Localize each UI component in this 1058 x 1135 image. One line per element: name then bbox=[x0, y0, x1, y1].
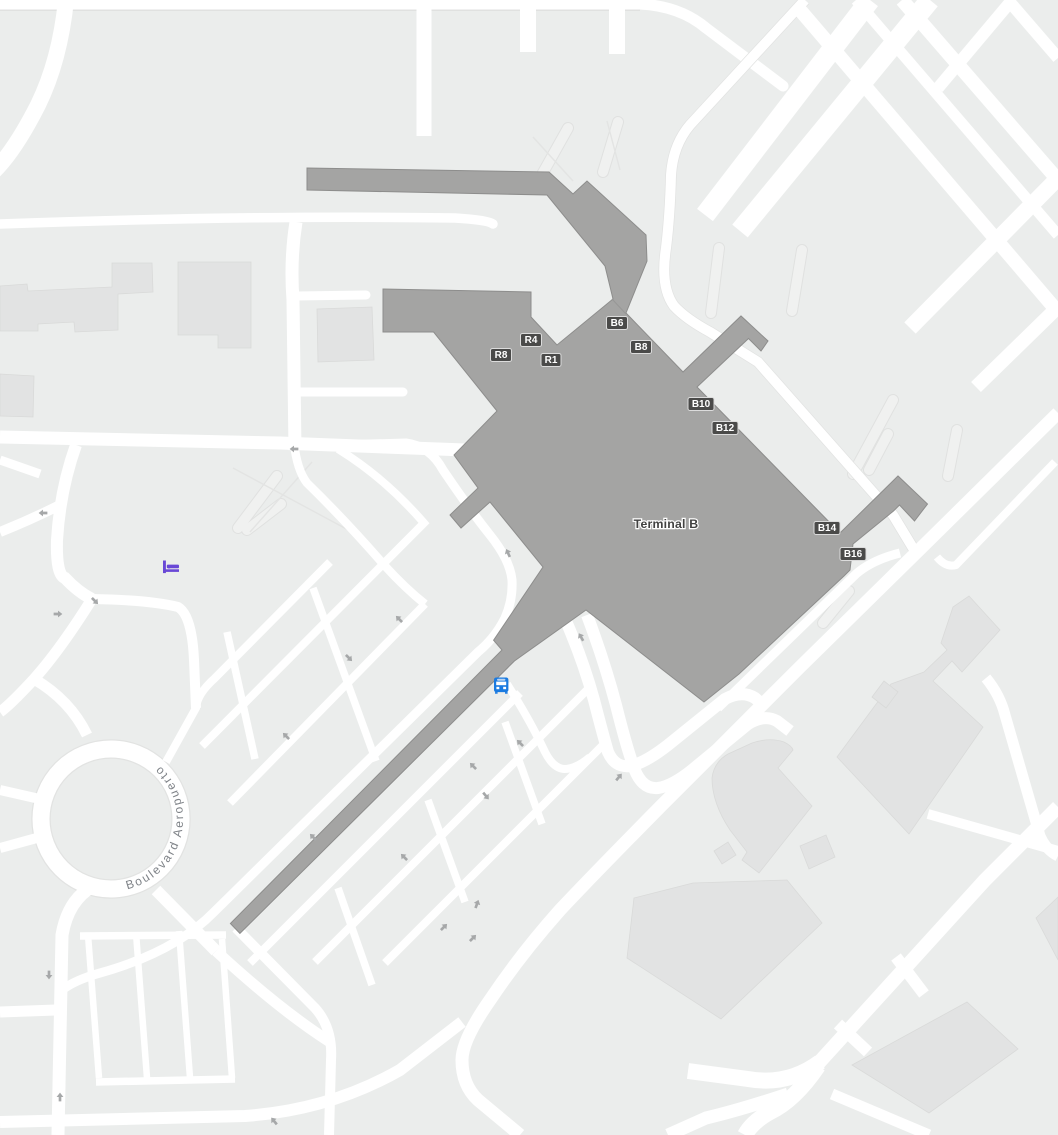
svg-text:R1: R1 bbox=[545, 355, 558, 366]
svg-text:Terminal B: Terminal B bbox=[634, 517, 699, 531]
svg-text:R8: R8 bbox=[495, 350, 508, 361]
svg-text:B8: B8 bbox=[635, 342, 648, 353]
svg-text:B6: B6 bbox=[611, 318, 624, 329]
svg-text:R4: R4 bbox=[525, 335, 538, 346]
svg-text:B10: B10 bbox=[692, 399, 711, 410]
svg-text:B12: B12 bbox=[716, 423, 735, 434]
svg-text:B16: B16 bbox=[844, 549, 863, 560]
svg-text:B14: B14 bbox=[818, 523, 837, 534]
